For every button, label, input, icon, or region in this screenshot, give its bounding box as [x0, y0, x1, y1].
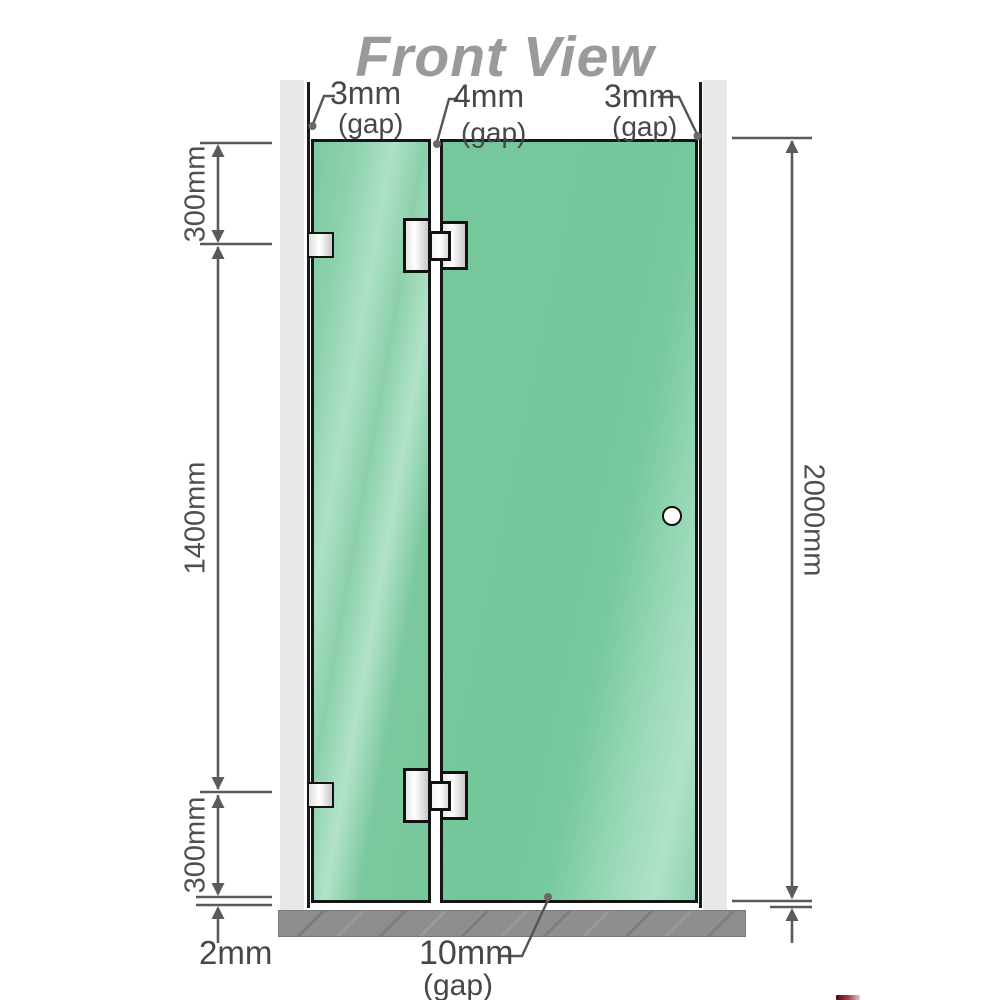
hinge-plate-left	[403, 218, 431, 273]
left-wall	[280, 80, 304, 910]
wall-bracket-top	[307, 232, 334, 258]
wall-bracket-bottom	[307, 782, 334, 808]
dimension-label-left-bottom: 300mm	[180, 797, 213, 894]
dimension-label-right-overall: 2000mm	[797, 464, 830, 577]
hinge-knuckle	[429, 781, 451, 811]
hinge-plate-left	[403, 768, 431, 823]
floor-base	[278, 910, 746, 937]
watermark-fragment	[836, 995, 860, 1000]
gap-unit: (gap)	[419, 971, 513, 1000]
hinge-knuckle	[429, 231, 451, 261]
door-knob	[662, 506, 682, 526]
gap-value: 3mm	[330, 77, 403, 110]
gap-value: 4mm	[453, 80, 526, 113]
glass-door-panel	[440, 139, 698, 903]
dimension-label-left-top: 300mm	[180, 146, 213, 243]
gap-annotation-top-middle: 4mm (gap)	[453, 80, 526, 147]
floor-gap-annotation: 2mm	[199, 934, 272, 972]
gap-value: 3mm	[604, 80, 677, 113]
front-view-diagram: Front View	[0, 0, 1000, 1000]
gap-annotation-top-left: 3mm (gap)	[330, 77, 403, 138]
gap-unit: (gap)	[453, 119, 526, 148]
gap-unit: (gap)	[330, 110, 403, 139]
dimension-label-left-middle: 1400mm	[180, 462, 213, 575]
gap-unit: (gap)	[604, 113, 677, 142]
right-wall-edge-line	[699, 82, 702, 908]
gap-annotation-bottom: 10mm (gap)	[419, 936, 513, 1000]
right-wall	[703, 80, 727, 910]
gap-annotation-top-right: 3mm (gap)	[604, 80, 677, 141]
gap-value: 10mm	[419, 936, 513, 971]
